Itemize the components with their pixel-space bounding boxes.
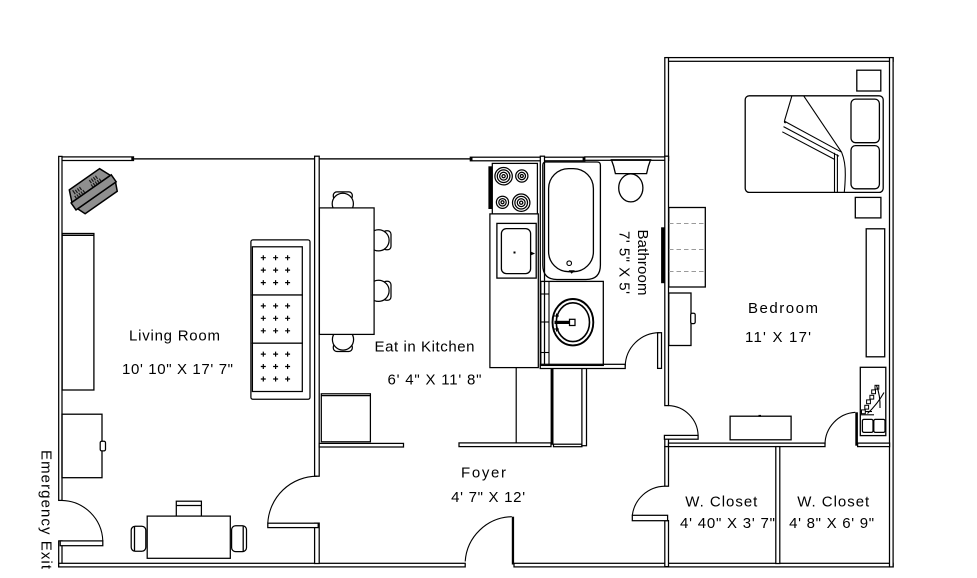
svg-text:Living Room: Living Room xyxy=(129,327,220,344)
svg-text:10' 10" X 17' 7": 10' 10" X 17' 7" xyxy=(122,361,233,378)
svg-text:11' X 17': 11' X 17' xyxy=(745,329,811,346)
svg-text:Foyer: Foyer xyxy=(461,464,506,481)
svg-text:Eat in Kitchen: Eat in Kitchen xyxy=(375,339,475,356)
svg-text:4' 40" X 3' 7": 4' 40" X 3' 7" xyxy=(680,515,775,532)
svg-text:W. Closet: W. Closet xyxy=(685,494,758,511)
svg-text:4' 7" X 12': 4' 7" X 12' xyxy=(451,489,525,506)
svg-text:7' 5" X 5': 7' 5" X 5' xyxy=(616,231,633,294)
svg-text:Bathroom: Bathroom xyxy=(634,230,651,296)
svg-text:W. Closet: W. Closet xyxy=(797,494,870,511)
svg-text:4' 8" X 6' 9": 4' 8" X 6' 9" xyxy=(789,515,874,532)
svg-text:Emergency Exit: Emergency Exit xyxy=(37,450,54,570)
svg-text:6' 4" X 11' 8": 6' 4" X 11' 8" xyxy=(388,371,482,388)
